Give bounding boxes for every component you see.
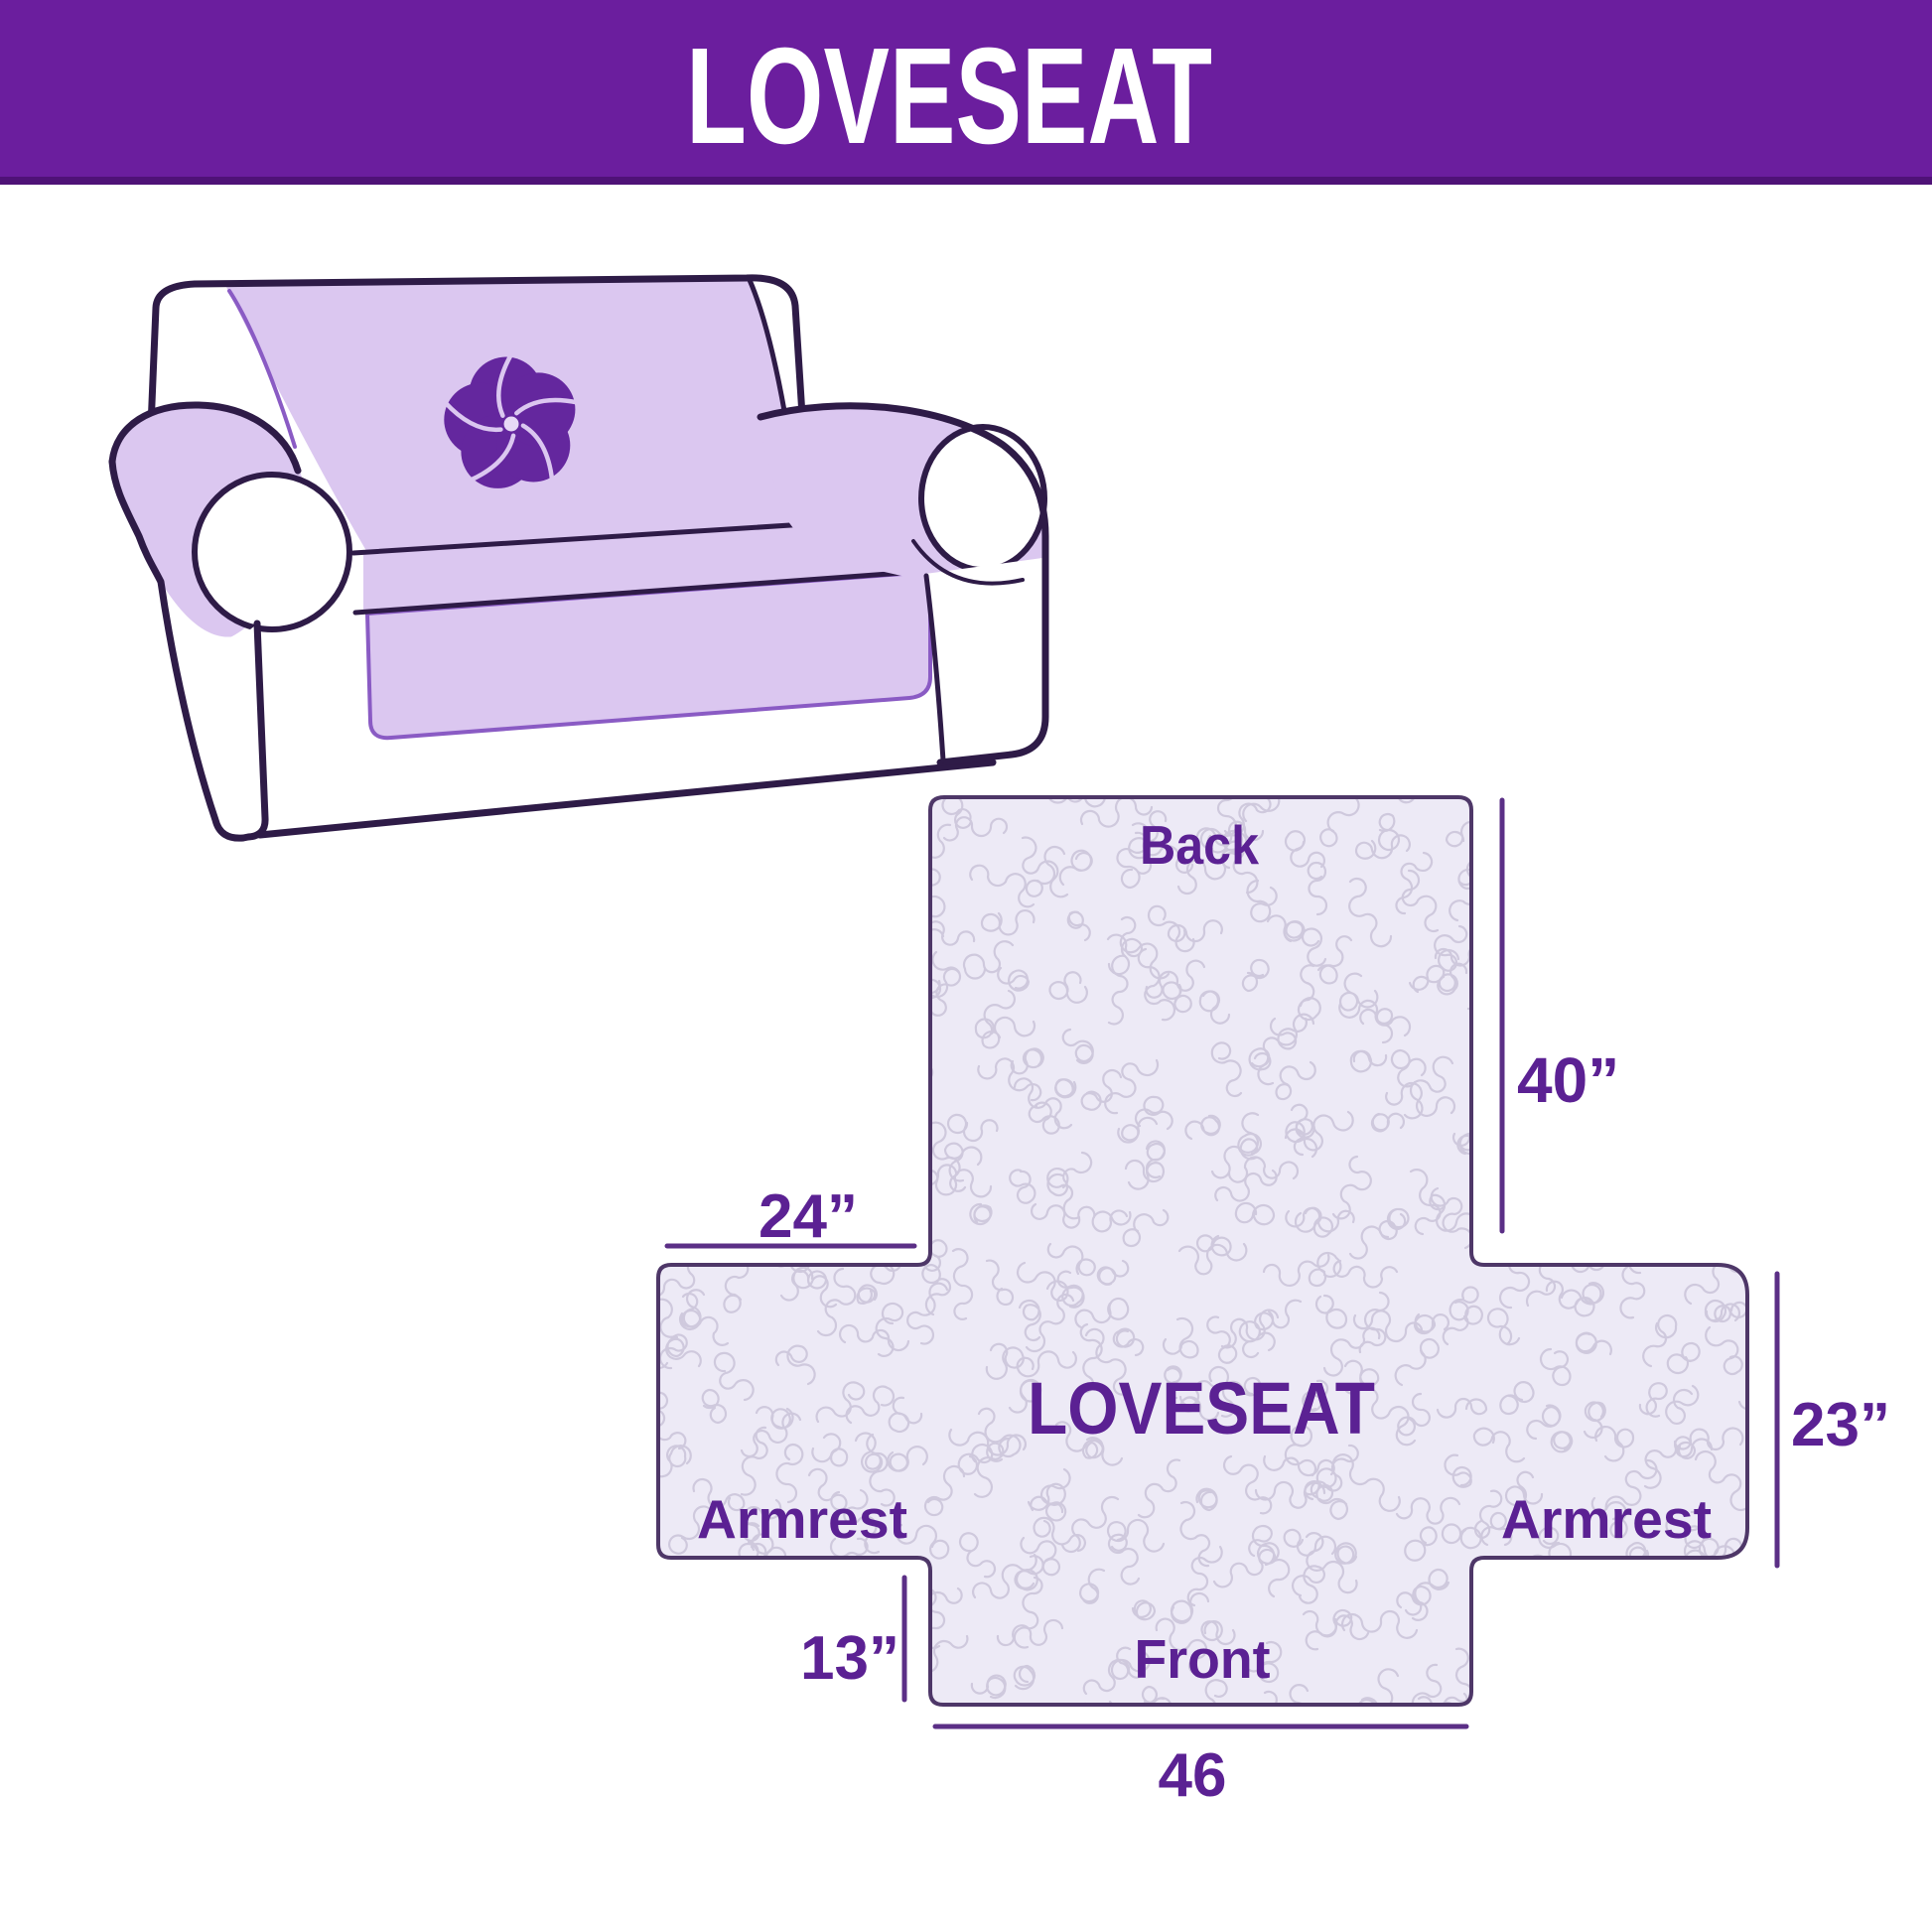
svg-text:24”: 24” [759, 1182, 858, 1251]
svg-text:23”: 23” [1791, 1391, 1890, 1459]
svg-text:40”: 40” [1517, 1044, 1619, 1116]
svg-text:Back: Back [1140, 814, 1259, 876]
svg-text:LOVESEAT: LOVESEAT [686, 20, 1212, 173]
svg-text:Armrest: Armrest [697, 1488, 907, 1550]
svg-text:Front: Front [1135, 1628, 1271, 1690]
svg-text:Armrest: Armrest [1501, 1488, 1712, 1550]
svg-text:13”: 13” [800, 1624, 899, 1693]
svg-text:LOVESEAT: LOVESEAT [1028, 1367, 1375, 1449]
svg-text:46: 46 [1159, 1741, 1227, 1810]
